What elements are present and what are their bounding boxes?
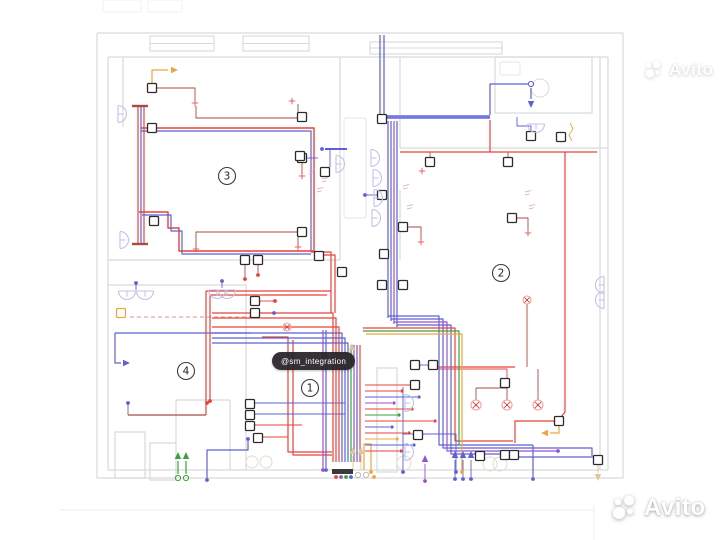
sconce-icon	[372, 210, 381, 227]
wire	[363, 328, 513, 441]
junction-box	[254, 434, 263, 443]
junction-box	[594, 456, 603, 465]
wire-end-dot	[390, 425, 393, 428]
wire-end-dot	[423, 479, 427, 483]
room-number-3: 3	[219, 168, 236, 185]
wires-layer	[115, 35, 598, 479]
lamp-symbol	[475, 404, 477, 406]
junction-box	[380, 250, 389, 259]
junction-box	[378, 281, 387, 290]
sconce-icon	[137, 291, 154, 300]
avito-watermark-top: Avito	[645, 60, 713, 80]
arrow-icon	[183, 452, 189, 459]
wire-end-dot	[339, 475, 343, 479]
wire-end-dot	[412, 443, 415, 446]
junction-box	[246, 400, 255, 409]
wire-end-dot	[417, 395, 420, 398]
ring-terminal	[363, 472, 368, 477]
watermark-badge: @sm_integration	[272, 352, 355, 370]
wire-end-dot	[126, 401, 130, 405]
junction-box	[557, 133, 566, 142]
wire-end-dot	[243, 277, 247, 281]
wire	[561, 152, 565, 417]
junction-box	[411, 381, 420, 390]
tiny-label	[525, 191, 531, 193]
tiny-label	[317, 188, 323, 190]
lamp-symbol	[526, 299, 528, 301]
wire-end-dot	[433, 419, 436, 422]
sconce-icon	[371, 150, 380, 167]
sconce-icon	[120, 232, 129, 249]
wire-end-dot	[469, 477, 473, 481]
wire	[115, 333, 121, 363]
arrow-icon	[358, 447, 364, 454]
wire-end-dot	[256, 273, 260, 277]
junction-box	[378, 115, 387, 124]
wiring-svg: 3241	[0, 0, 720, 540]
wire	[517, 218, 528, 230]
wire	[196, 104, 298, 118]
wire	[364, 444, 371, 470]
arrow-icon	[528, 101, 534, 108]
wire	[569, 123, 573, 141]
wire	[139, 212, 314, 251]
junction-box	[148, 124, 157, 133]
tiny-label	[322, 178, 328, 180]
wire-end-dot	[208, 399, 212, 403]
furniture	[260, 456, 272, 468]
junction-box	[501, 379, 510, 388]
furniture	[344, 118, 366, 218]
faint-outline	[103, 0, 141, 12]
wire	[141, 131, 311, 252]
tiny-label	[317, 191, 322, 192]
wire-end-dot	[369, 470, 373, 474]
wire-end-dot	[134, 281, 138, 285]
wire-end-dot	[334, 475, 338, 479]
sconce-icon	[118, 106, 127, 123]
wire	[152, 70, 168, 83]
wire-end-dot	[363, 193, 367, 197]
junction-box	[508, 214, 517, 223]
junction-box	[251, 309, 260, 318]
avito-watermark-bottom: Avito	[612, 494, 706, 522]
faint-outline	[148, 0, 182, 12]
junction-box	[555, 417, 564, 426]
wall-rect	[495, 57, 592, 113]
wire	[157, 88, 195, 101]
svg-text:4: 4	[183, 366, 190, 378]
dots-layer	[126, 81, 600, 483]
plus-marks-layer	[192, 98, 531, 252]
junction-box	[476, 452, 485, 461]
junction-box	[399, 223, 408, 232]
junction-box	[246, 411, 255, 420]
sconce-icon	[119, 291, 136, 300]
junction-box	[426, 158, 435, 167]
terminal-bar	[332, 469, 353, 474]
svg-text:2: 2	[498, 268, 505, 280]
junction-box	[411, 361, 420, 370]
arrow-icon	[422, 455, 428, 462]
tiny-label	[407, 208, 412, 209]
room-number-4: 4	[178, 363, 195, 380]
junction-box	[298, 228, 307, 237]
junction-box	[399, 281, 408, 290]
junction-box	[414, 431, 423, 440]
wire	[490, 84, 528, 115]
wall-rect	[150, 443, 176, 480]
furniture	[531, 79, 549, 97]
avito-logo-icon	[645, 61, 663, 79]
svg-text:3: 3	[224, 171, 231, 183]
avito-watermark-bottom-text: Avito	[644, 494, 706, 522]
lamp-symbol	[506, 404, 508, 406]
junction-box-orange	[117, 309, 126, 318]
wire-end-dot	[395, 437, 398, 440]
wire	[207, 441, 248, 478]
wire-end-dot	[344, 475, 348, 479]
junction-box	[501, 451, 510, 460]
labels-pink-layer	[309, 170, 535, 210]
junction-box	[510, 451, 519, 460]
wire-end-dot	[461, 477, 465, 481]
room-number-1: 1	[302, 380, 319, 397]
wire-end-dot	[320, 147, 324, 151]
wire	[314, 255, 335, 313]
arrow-icon	[541, 430, 548, 436]
wire-end-dot	[407, 431, 410, 434]
arrow-icon	[123, 360, 130, 366]
tiny-label	[407, 205, 413, 207]
junction-box	[254, 256, 263, 265]
junction-box	[321, 168, 330, 177]
wire-end-dot	[349, 475, 353, 479]
furniture	[500, 62, 520, 75]
wire-end-dot	[246, 437, 250, 441]
junction-box	[338, 268, 347, 277]
junction-box	[504, 158, 513, 167]
room-number-2: 2	[493, 265, 510, 282]
wire-end-dot	[556, 449, 560, 453]
tiny-label	[322, 181, 327, 182]
wire-end-dot	[205, 478, 209, 482]
wire-end-dot	[399, 449, 402, 452]
wire	[212, 327, 339, 462]
wall-rect	[115, 432, 145, 478]
lamp-symbol	[537, 404, 539, 406]
wire	[438, 369, 507, 378]
junction-box	[251, 297, 260, 306]
wire-end-dot	[460, 470, 464, 474]
wire-end-dot	[400, 389, 403, 392]
wire-end-dot	[372, 475, 376, 479]
wire-end-dot	[220, 279, 224, 283]
furniture	[397, 456, 411, 470]
junction-box	[148, 84, 157, 93]
junction-box	[298, 113, 307, 122]
wall-rect	[377, 368, 397, 472]
wire	[196, 232, 298, 249]
badge-label: @sm_integration	[281, 357, 346, 366]
junction-box	[429, 361, 438, 370]
tiny-label	[403, 185, 409, 187]
avito-watermark-top-text: Avito	[669, 60, 713, 80]
tiny-label	[529, 205, 535, 207]
tiny-label	[403, 188, 408, 189]
wire	[550, 426, 559, 433]
wire-end-dot	[397, 413, 400, 416]
junction-box	[241, 256, 250, 265]
sconce-icon	[373, 170, 382, 187]
wire-end-dot	[454, 470, 458, 474]
wire-end-dot	[321, 468, 325, 472]
sconces-layer	[118, 106, 604, 461]
wire-end-dot	[453, 477, 457, 481]
wire	[141, 128, 314, 252]
wire-end-dot	[392, 401, 395, 404]
tiny-label	[529, 208, 534, 209]
wire	[388, 316, 533, 445]
avito-logo-icon	[612, 495, 638, 521]
tiny-label	[525, 194, 530, 195]
arrow-icon	[171, 67, 178, 73]
wire-end-dot	[531, 477, 535, 481]
wire-end-dot	[273, 299, 277, 303]
svg-text:1: 1	[307, 383, 314, 395]
junction-box	[246, 422, 255, 431]
junction-box	[296, 152, 305, 161]
wire-end-dot	[272, 311, 276, 315]
wire	[515, 421, 554, 443]
junction-box	[150, 217, 159, 226]
wire-end-dot	[401, 470, 405, 474]
ring-terminal	[355, 472, 360, 477]
screenshot-root: 3241 @sm_integration Avito Avito	[0, 0, 720, 540]
lamp-symbol	[286, 326, 288, 328]
furniture	[246, 456, 258, 468]
junction-box	[315, 252, 324, 261]
wire	[408, 227, 421, 239]
